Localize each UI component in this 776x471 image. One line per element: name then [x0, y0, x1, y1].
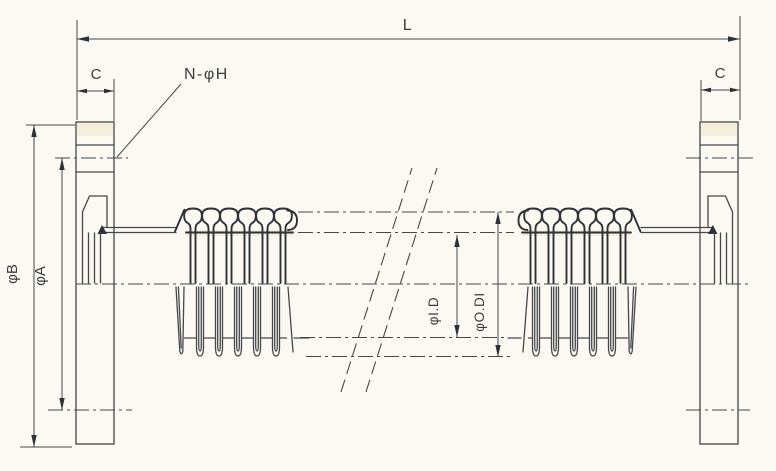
label-L: L: [403, 17, 413, 34]
label-phiB: φB: [4, 264, 21, 284]
label-N-phiH: N-φH: [184, 66, 229, 83]
pipe-left: [83, 196, 177, 283]
scan-tint: [77, 123, 737, 236]
break-lines: [341, 168, 437, 392]
weld-mark-right: [708, 225, 718, 234]
pipe-right: [641, 196, 733, 283]
dimension-phiA: φA: [32, 158, 65, 410]
label-phiA: φA: [32, 266, 49, 286]
dimension-phiID: φI.D: [426, 235, 460, 337]
engineering-drawing-page: L C C N-φH φB φA φI.D φO.DI: [0, 0, 776, 471]
dimension-C-left: C: [77, 66, 114, 121]
label-phiID: φI.D: [426, 297, 441, 325]
label-C-right: C: [715, 65, 726, 82]
bolt-hole-callout: N-φH: [117, 66, 229, 157]
dimension-L: L: [77, 16, 740, 120]
label-phiOD: φO.DI: [472, 292, 487, 332]
label-C-left: C: [91, 66, 102, 83]
dimension-C-right: C: [701, 65, 740, 121]
center-lines: [48, 158, 756, 410]
expansion-joint-drawing: L C C N-φH φB φA φI.D φO.DI: [0, 0, 776, 471]
weld-mark-left: [98, 225, 108, 234]
